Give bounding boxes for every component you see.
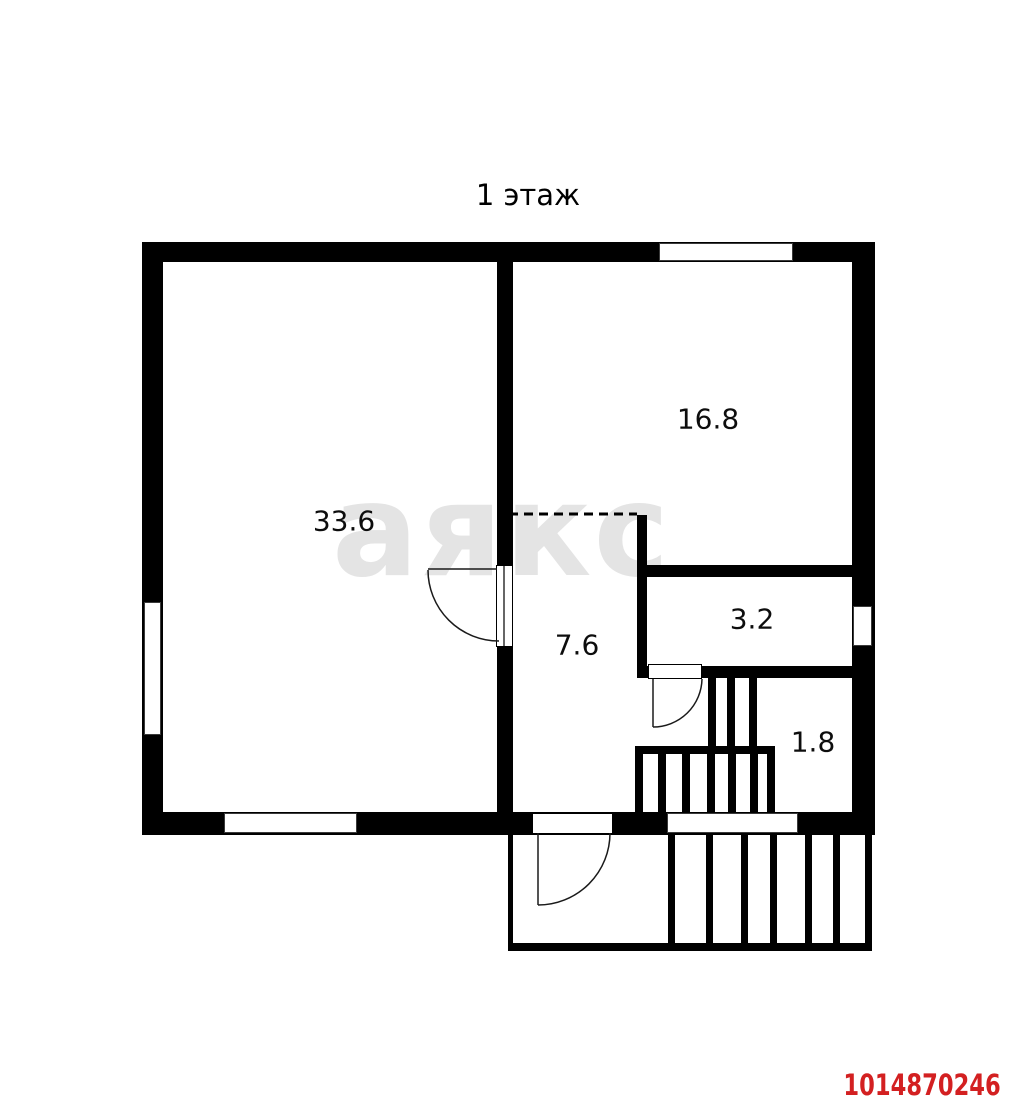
stair-step [682, 754, 690, 812]
room-area-label-living: 33.6 [313, 505, 375, 538]
door-entrance [532, 813, 613, 834]
listing-id-badge: 1014870246 [844, 1068, 1001, 1102]
stair-step [635, 754, 643, 812]
stair-landing-edge [635, 746, 775, 754]
porch-passage-opening [667, 813, 798, 833]
porch-step [741, 835, 748, 948]
stair-step [750, 754, 758, 812]
wall-center-lower [497, 646, 513, 812]
stair-step [728, 754, 736, 812]
stair-step [708, 678, 716, 746]
stair-step [749, 678, 757, 746]
room-area-label-bedroom: 16.8 [677, 403, 739, 436]
stair-step [727, 678, 735, 746]
wall-room32-top [647, 565, 852, 577]
porch-step [668, 835, 675, 948]
door-living-hall [496, 565, 513, 647]
porch-edge-bottom [508, 943, 872, 951]
porch-step [805, 835, 812, 948]
stair-step [707, 754, 715, 812]
room-area-label-hall: 7.6 [555, 629, 600, 662]
room-area-label-stairs: 1.8 [791, 726, 836, 759]
window-left [144, 602, 161, 735]
stair-step [767, 754, 775, 812]
floor-plan [0, 0, 1017, 1106]
porch-step [706, 835, 713, 948]
door-room32 [648, 664, 702, 679]
wall-hall-stub [637, 515, 647, 678]
window-right [853, 606, 872, 646]
wall-room32-bottom-right [702, 666, 852, 678]
stair-step [658, 754, 666, 812]
room-area-label-bath: 3.2 [730, 603, 775, 636]
porch-step [770, 835, 777, 948]
porch-wall-left [508, 835, 513, 948]
wall-room32-bottom-left [637, 666, 648, 678]
floor-plan-page: 1 этаж аякс [0, 0, 1017, 1106]
wall-center-upper [497, 262, 513, 567]
window-bottom [224, 813, 357, 833]
porch-step [865, 835, 872, 948]
wall-right [852, 242, 875, 835]
wall-left [142, 242, 163, 835]
window-top [659, 243, 793, 261]
porch-step [833, 835, 840, 948]
